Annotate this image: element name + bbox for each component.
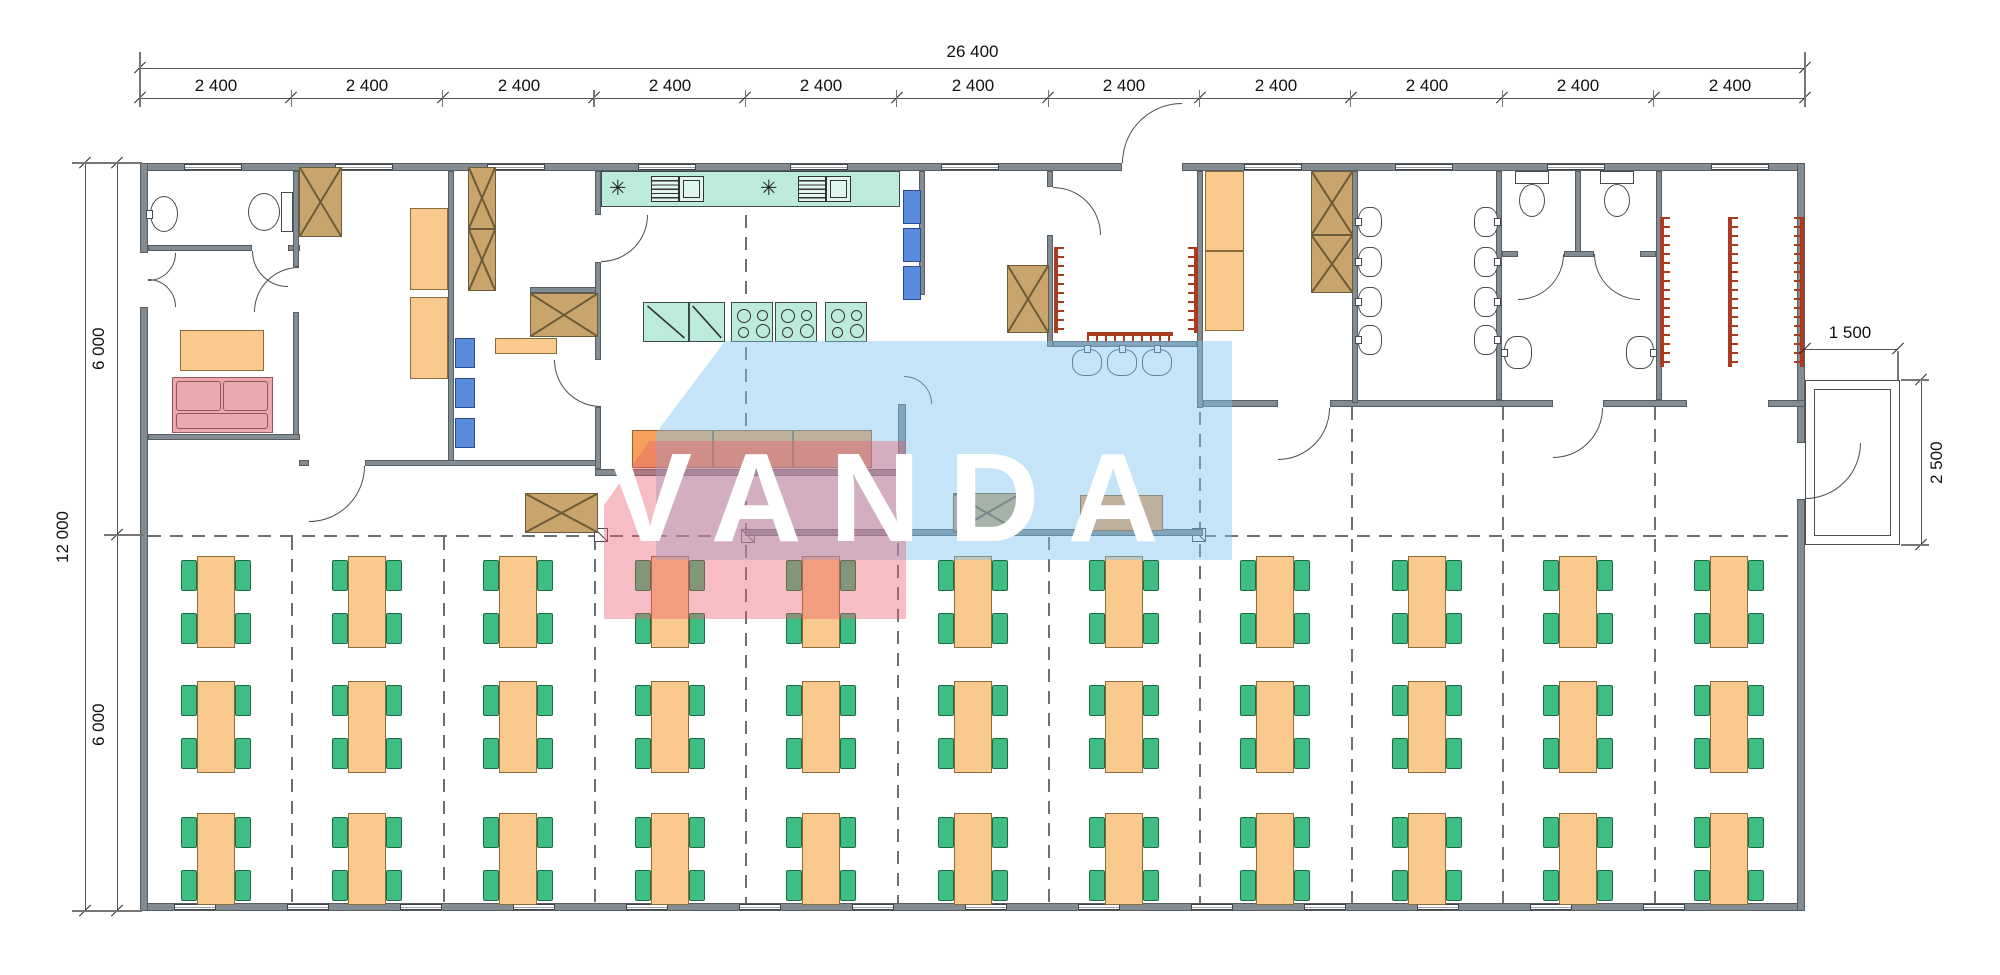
counter-small (495, 338, 557, 354)
chair (386, 817, 402, 848)
kitchen-sink-bowl (679, 176, 704, 202)
wall-segment (1797, 499, 1805, 911)
dimension-label: 2 400 (745, 76, 897, 96)
sink (150, 196, 178, 232)
wall-segment (1575, 171, 1581, 254)
chair (786, 817, 802, 848)
chair (235, 870, 251, 901)
chair (635, 613, 651, 644)
chair (689, 560, 705, 591)
extension-line (745, 90, 746, 107)
chair (689, 870, 705, 901)
extension-line (442, 90, 443, 107)
chair (1143, 685, 1159, 716)
door-arc (254, 267, 299, 312)
stove-burner-icon (801, 310, 812, 321)
chair (635, 685, 651, 716)
door-arc (1553, 408, 1603, 458)
dining-table-group (332, 681, 402, 773)
kitchen-light-icon: ✳ (609, 178, 627, 199)
sink-tap-icon (1501, 349, 1508, 357)
window (941, 164, 999, 170)
tall-cabinet (1205, 251, 1244, 331)
wall-segment (293, 312, 299, 440)
dimension-line (1805, 349, 1898, 350)
extension-line (1350, 90, 1351, 107)
dimension-left-upper: 6 000 (88, 163, 110, 535)
tall-cabinet (1205, 171, 1244, 251)
chair (992, 817, 1008, 848)
wash-basin (1072, 349, 1102, 376)
chair (840, 870, 856, 901)
dining-table-group (483, 681, 553, 773)
dining-table-group (1240, 681, 1310, 773)
chair (483, 738, 499, 769)
chair (1294, 870, 1310, 901)
chair (537, 685, 553, 716)
dining-table-group (938, 813, 1008, 905)
door-arc (554, 360, 601, 407)
wall-segment (148, 434, 300, 440)
chair (635, 560, 651, 591)
chair (235, 738, 251, 769)
coat-hooks (1054, 247, 1064, 333)
cabinet (299, 167, 342, 237)
dimension-label: 2 400 (897, 76, 1049, 96)
chair (840, 817, 856, 848)
sink-tap-icon (1650, 349, 1657, 357)
coat-rack-hooks (1794, 217, 1804, 367)
stove-burner-icon (832, 327, 843, 338)
chair (1597, 560, 1613, 591)
dining-table (1559, 681, 1597, 773)
chair (1597, 738, 1613, 769)
stove-burner-icon (781, 309, 795, 323)
chair (332, 738, 348, 769)
chair (235, 560, 251, 591)
dining-table (1710, 556, 1748, 648)
dining-table (1710, 813, 1748, 905)
chair (1694, 613, 1710, 644)
wall-segment (1768, 400, 1805, 407)
refrigerator (689, 302, 725, 342)
extension-line (104, 534, 144, 535)
chair (938, 685, 954, 716)
extension-line (72, 910, 142, 911)
sink (1504, 336, 1532, 369)
chair (483, 817, 499, 848)
wall-segment (1496, 171, 1502, 400)
chair (1294, 817, 1310, 848)
chair (1597, 685, 1613, 716)
sofa (172, 377, 273, 433)
dining-table-group (483, 556, 553, 648)
desk (410, 297, 448, 379)
serving-counter (632, 430, 872, 468)
stove-burner-icon (850, 324, 864, 338)
stove-burner-icon (757, 310, 768, 321)
chair (1240, 560, 1256, 591)
chair (235, 817, 251, 848)
chair (1392, 870, 1408, 901)
chair (635, 738, 651, 769)
chair (1694, 685, 1710, 716)
dining-table (954, 681, 992, 773)
basin-tap-icon (1355, 336, 1362, 344)
chair (181, 685, 197, 716)
extension-line (1653, 90, 1654, 107)
coat-rack-hooks (1660, 217, 1670, 367)
chair (1694, 560, 1710, 591)
grid-line-horizontal (148, 535, 745, 537)
chair (1543, 560, 1559, 591)
dining-table-group (786, 556, 856, 648)
wall-segment (1502, 251, 1518, 257)
dining-table (802, 813, 840, 905)
chair (635, 817, 651, 848)
dining-table-group (1089, 813, 1159, 905)
dining-table-group (1392, 681, 1462, 773)
dining-table-group (938, 556, 1008, 648)
chair (386, 685, 402, 716)
extension-line (1048, 90, 1049, 107)
dining-table (1710, 681, 1748, 773)
chair (786, 685, 802, 716)
toilet (248, 193, 280, 231)
chair (1089, 685, 1105, 716)
chair (1089, 613, 1105, 644)
lounge-table (180, 330, 264, 371)
window (638, 164, 696, 170)
basin-tap-icon (1494, 218, 1501, 226)
dimension-line (140, 68, 1805, 69)
chair (1294, 738, 1310, 769)
dining-table (651, 556, 689, 648)
chair (386, 738, 402, 769)
chair (1543, 613, 1559, 644)
kitchen-light-icon: ✳ (760, 178, 778, 199)
dining-table (1559, 556, 1597, 648)
chair (786, 560, 802, 591)
dimension-label: 2 400 (1200, 76, 1352, 96)
grid-line-vertical (291, 537, 293, 903)
dining-table-group (1089, 681, 1159, 773)
kitchen-counter (601, 171, 900, 207)
chair (1089, 817, 1105, 848)
stove-burner-icon (737, 309, 751, 323)
dining-table-group (181, 813, 251, 905)
extension-line (139, 90, 140, 107)
dining-table (499, 813, 537, 905)
dimension-line (1921, 380, 1922, 545)
extension-line (1502, 90, 1503, 107)
toilet (1604, 184, 1630, 217)
door-arc (1278, 408, 1330, 460)
dining-table-group (1543, 681, 1613, 773)
dining-table (348, 556, 386, 648)
cabinet (525, 493, 598, 533)
door-arc (309, 466, 365, 522)
chair (840, 685, 856, 716)
chair (1294, 613, 1310, 644)
chair (1240, 613, 1256, 644)
cabinet (1007, 265, 1049, 333)
chair (840, 738, 856, 769)
chair (386, 613, 402, 644)
chair (181, 613, 197, 644)
kitchen-sink-bowl (826, 176, 851, 202)
chair (332, 560, 348, 591)
chair (537, 613, 553, 644)
chair (332, 685, 348, 716)
dining-table (1105, 813, 1143, 905)
chair (1543, 870, 1559, 901)
basin-tap-icon (1355, 258, 1362, 266)
sofa-seat (176, 413, 268, 429)
dimension-label: 2 400 (1351, 76, 1503, 96)
wall-segment (1603, 400, 1687, 407)
floor-plan-canvas: 26 400 2 4002 4002 4002 4002 4002 4002 4… (0, 0, 2000, 975)
servery-counter (1080, 495, 1163, 531)
chair (1294, 560, 1310, 591)
wall-segment (448, 171, 454, 466)
chair (786, 738, 802, 769)
toilet-tank (281, 192, 293, 232)
door-arc (1122, 103, 1182, 163)
chair (1446, 870, 1462, 901)
chair (332, 870, 348, 901)
coat-hooks (1188, 247, 1198, 333)
chair (1748, 870, 1764, 901)
chair (1392, 738, 1408, 769)
window (400, 904, 442, 910)
dining-table-group (786, 681, 856, 773)
window (1547, 164, 1605, 170)
chair (1446, 613, 1462, 644)
dining-table-group (332, 813, 402, 905)
window (1711, 164, 1769, 170)
stove-burner-icon (738, 327, 749, 338)
toilet-tank (1600, 171, 1634, 184)
chair (181, 560, 197, 591)
chair (1543, 738, 1559, 769)
chair-blue (455, 338, 475, 368)
cabinet (468, 167, 496, 229)
dimension-left-lower: 6 000 (88, 539, 110, 911)
wash-basin (1107, 349, 1137, 376)
window (790, 164, 848, 170)
grid-line-vertical (1654, 407, 1656, 903)
dimension-porch-depth: 2 500 (1926, 380, 1948, 545)
dining-table (1105, 556, 1143, 648)
dining-table (197, 681, 235, 773)
dining-table-group (1240, 813, 1310, 905)
chair (938, 870, 954, 901)
chair (992, 560, 1008, 591)
grid-line-vertical (1351, 407, 1353, 903)
chair (1240, 870, 1256, 901)
chair (181, 870, 197, 901)
extension-line (896, 90, 897, 107)
dining-table-group (181, 556, 251, 648)
door-arc (148, 253, 176, 281)
chair (483, 560, 499, 591)
stove-burner-icon (851, 310, 862, 321)
coat-rack-hooks (1728, 217, 1738, 367)
shelf-blue (903, 228, 921, 262)
dimension-label: 2 400 (443, 76, 595, 96)
toilet (1519, 184, 1545, 217)
dimension-top-total: 26 400 (140, 42, 1805, 62)
cabinet (530, 293, 598, 337)
porch-inner (1814, 389, 1891, 536)
dining-table-group (1694, 681, 1764, 773)
extension-line (72, 162, 142, 163)
door-arc (601, 215, 648, 262)
dining-table-group (635, 813, 705, 905)
dining-table-group (1392, 813, 1462, 905)
chair (483, 870, 499, 901)
door-arc (148, 279, 176, 307)
chair (938, 817, 954, 848)
chair (1392, 817, 1408, 848)
dining-table-group (483, 813, 553, 905)
window (1304, 904, 1346, 910)
chair (386, 560, 402, 591)
chair (1240, 738, 1256, 769)
chair (537, 870, 553, 901)
chair (1694, 817, 1710, 848)
chair (1143, 870, 1159, 901)
chair (992, 870, 1008, 901)
dining-table (1408, 681, 1446, 773)
extension-line (1897, 351, 1898, 381)
window (1643, 904, 1685, 910)
chair (689, 613, 705, 644)
stove-burner-icon (756, 324, 770, 338)
chair (1694, 870, 1710, 901)
dimension-label: 2 400 (1048, 76, 1200, 96)
grid-line-vertical (594, 537, 596, 903)
sofa-cushion (176, 381, 221, 411)
chair (938, 613, 954, 644)
chair (786, 870, 802, 901)
chair (1748, 817, 1764, 848)
dimension-left-total: 12 000 (52, 163, 74, 911)
window (739, 904, 781, 910)
wall-segment (299, 460, 309, 466)
chair (332, 817, 348, 848)
wall-segment (148, 245, 252, 251)
chair (1089, 870, 1105, 901)
dimension-label: 2 400 (291, 76, 443, 96)
window (184, 164, 242, 170)
dining-table (197, 556, 235, 648)
toilet-tank (1515, 171, 1549, 184)
basin-tap-icon (1355, 218, 1362, 226)
chair (235, 685, 251, 716)
chair (235, 613, 251, 644)
chair-blue (455, 418, 475, 448)
basin-tap-icon (1119, 345, 1126, 353)
dining-table (499, 681, 537, 773)
wall-segment (1564, 251, 1594, 257)
dimension-label: 2 400 (140, 76, 292, 96)
dining-table-group (1694, 556, 1764, 648)
chair (1240, 817, 1256, 848)
chair (483, 613, 499, 644)
dimension-label: 2 400 (1502, 76, 1654, 96)
dimension-line (140, 98, 1805, 99)
dining-table (1256, 813, 1294, 905)
dining-table (1408, 556, 1446, 648)
window (1395, 164, 1453, 170)
window (1191, 904, 1233, 910)
chair (938, 738, 954, 769)
desk (410, 208, 448, 290)
wall-segment (365, 460, 601, 466)
grid-line-vertical (1502, 407, 1504, 903)
chair (1597, 870, 1613, 901)
extension-line (1901, 379, 1929, 380)
extension-line (1901, 544, 1929, 545)
window (335, 164, 393, 170)
dining-table (1256, 556, 1294, 648)
basin-tap-icon (1084, 345, 1091, 353)
dimension-line (85, 163, 86, 911)
chair (1748, 685, 1764, 716)
stove (825, 302, 867, 342)
counter-divider (712, 430, 714, 468)
dining-table (1559, 813, 1597, 905)
stove (731, 302, 773, 342)
chair (1089, 738, 1105, 769)
wall-segment (595, 407, 601, 469)
chair (1597, 817, 1613, 848)
dining-table (802, 556, 840, 648)
dining-table (499, 556, 537, 648)
dining-table-group (332, 556, 402, 648)
chair-blue (455, 378, 475, 408)
chair (1089, 560, 1105, 591)
dining-table (197, 813, 235, 905)
wash-basin (1142, 349, 1172, 376)
chair (840, 560, 856, 591)
dining-table (651, 813, 689, 905)
chair (181, 817, 197, 848)
dimension-label: 2 400 (594, 76, 746, 96)
extension-line (1804, 90, 1805, 107)
cabinet (953, 493, 1021, 533)
chair (1748, 613, 1764, 644)
chair (1446, 738, 1462, 769)
chair (537, 817, 553, 848)
dining-table (954, 813, 992, 905)
sofa-cushion (223, 381, 268, 411)
grid-line-vertical (1199, 412, 1201, 903)
coat-hooks (1087, 332, 1173, 342)
chair (635, 870, 651, 901)
kitchen-sink-drainer (798, 176, 826, 202)
chair (689, 817, 705, 848)
counter-divider (792, 430, 794, 468)
basin-tap-icon (1154, 345, 1161, 353)
door-arc (904, 376, 932, 404)
chair (786, 613, 802, 644)
chair (537, 560, 553, 591)
chair (1240, 685, 1256, 716)
dining-table-group (635, 681, 705, 773)
